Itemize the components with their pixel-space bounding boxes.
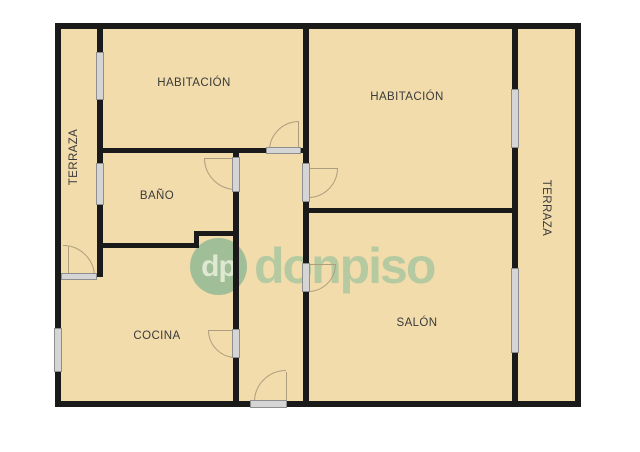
room-label-terraza-left: TERRAZA (68, 129, 80, 185)
window-cocina (54, 328, 62, 372)
door-leaf-habitacion2 (308, 168, 338, 169)
room-label-terraza-right: TERRAZA (540, 180, 552, 236)
window-terraza-bano (96, 163, 104, 205)
door-arc-habitacion2 (308, 168, 338, 198)
window-habitacion2 (511, 89, 519, 148)
plan-outer-walls (55, 23, 581, 407)
door-threshold-bano (232, 157, 240, 192)
door-threshold-cocina (232, 329, 240, 358)
window-terraza-habitacion1 (96, 52, 104, 100)
room-label-salon: SALÓN (397, 317, 438, 329)
door-arc-salon (308, 264, 336, 292)
door-threshold-salon (302, 263, 310, 292)
wall-notch-top (197, 231, 239, 236)
room-label-habitacion-2: HABITACIÓN (370, 91, 443, 103)
door-threshold-terraza-left (61, 273, 97, 280)
room-label-cocina: COCINA (133, 330, 180, 342)
room-label-habitacion-1: HABITACIÓN (157, 77, 230, 89)
wall-habitacion2-salon (309, 208, 518, 213)
donpiso-logo-initials: dp (201, 250, 236, 284)
window-salon (511, 268, 519, 353)
door-threshold-habitacion1 (266, 147, 301, 154)
floor-plan: dp donpiso HABITACIÓN HABITACIÓN BAÑO CO… (0, 0, 640, 452)
donpiso-brand-watermark: donpiso (254, 238, 434, 296)
room-label-bano: BAÑO (140, 190, 174, 202)
door-arc-entrance (254, 370, 286, 402)
door-leaf-entrance (286, 372, 287, 402)
wall-hall-right (303, 29, 309, 401)
door-leaf-salon (308, 264, 336, 265)
door-threshold-habitacion2 (302, 163, 310, 202)
entrance-threshold (250, 400, 287, 408)
wall-bano-bottom (100, 243, 199, 248)
